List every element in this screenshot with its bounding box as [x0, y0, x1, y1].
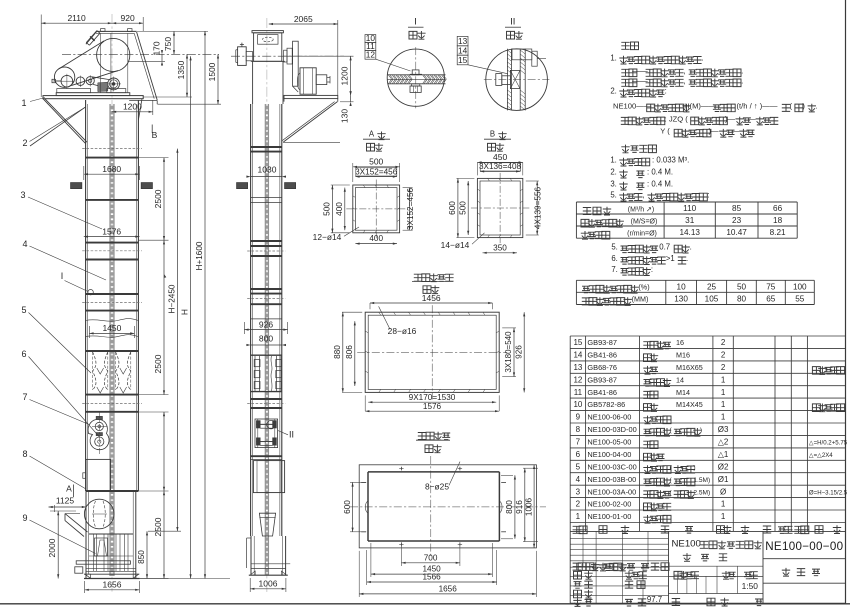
svg-text:1566: 1566 [422, 573, 441, 582]
svg-text:: 0.4 M.: : 0.4 M. [647, 180, 673, 189]
svg-text:>1: >1 [666, 254, 675, 263]
svg-text:55: 55 [795, 295, 805, 304]
svg-text:916: 916 [515, 500, 524, 514]
svg-text:I: I [414, 17, 417, 28]
svg-text:0.7: 0.7 [659, 243, 670, 252]
svg-text:GB93-87: GB93-87 [587, 338, 617, 347]
svg-text:926: 926 [259, 319, 273, 329]
svg-text:25: 25 [707, 283, 717, 292]
svg-text:: 0.033 M³.: : 0.033 M³. [652, 156, 689, 165]
svg-text:)—: )— [708, 127, 719, 136]
svg-text:): ) [700, 427, 702, 434]
svg-text:B: B [490, 130, 495, 139]
svg-text:13: 13 [573, 363, 582, 372]
svg-text:4: 4 [22, 239, 27, 249]
svg-text:△1: △1 [718, 450, 729, 459]
svg-text:NE100−00−00: NE100−00−00 [765, 540, 843, 553]
svg-text:1: 1 [721, 400, 726, 409]
svg-text:H(M)——: H(M)—— [684, 101, 716, 110]
svg-text:800: 800 [505, 500, 514, 514]
svg-text:350: 350 [493, 243, 507, 252]
svg-text:8−ø25: 8−ø25 [425, 482, 449, 492]
svg-text:2.5M): 2.5M) [693, 489, 710, 496]
svg-text:Ø=H−3.15/2.5: Ø=H−3.15/2.5 [809, 489, 848, 496]
svg-text:5: 5 [576, 462, 581, 471]
svg-text:16: 16 [676, 338, 684, 347]
svg-text:1576: 1576 [102, 226, 121, 236]
svg-text:14: 14 [573, 351, 582, 360]
svg-text:)—: )— [725, 114, 736, 123]
svg-text:—: — [732, 127, 740, 136]
svg-text:(M/S=Ø): (M/S=Ø) [631, 218, 658, 225]
svg-text:3: 3 [20, 190, 25, 200]
svg-text::: : [665, 87, 667, 96]
svg-text:M14X45: M14X45 [676, 400, 703, 409]
svg-text:H−2450: H−2450 [167, 284, 176, 313]
svg-text:△=△2X4: △=△2X4 [809, 452, 833, 459]
svg-text:28−ø16: 28−ø16 [388, 326, 417, 336]
svg-text:1456: 1456 [422, 293, 441, 303]
svg-text:1: 1 [721, 512, 726, 521]
svg-text:50: 50 [737, 283, 747, 292]
svg-text:I: I [61, 271, 64, 281]
svg-text:1006: 1006 [524, 497, 533, 516]
svg-text:31: 31 [685, 216, 695, 225]
svg-text:3.: 3. [610, 180, 617, 189]
svg-text:,: , [683, 76, 685, 85]
svg-text:II: II [289, 430, 294, 440]
svg-text:): ) [693, 464, 695, 471]
svg-text:H: H [181, 309, 190, 315]
svg-text:2500: 2500 [153, 517, 163, 536]
svg-text:97.7: 97.7 [647, 595, 662, 604]
svg-text:80: 80 [737, 295, 747, 304]
svg-text:15: 15 [573, 338, 582, 347]
svg-text:3X136=408: 3X136=408 [479, 162, 522, 171]
svg-text:7: 7 [22, 392, 27, 402]
svg-text:600: 600 [343, 500, 352, 514]
svg-text:3X152=456: 3X152=456 [406, 187, 415, 230]
svg-text:NE100-03B-00: NE100-03B-00 [587, 475, 636, 484]
svg-text:(t/h / ↑ )——: (t/h / ↑ )—— [737, 101, 778, 110]
svg-text:1350: 1350 [176, 60, 186, 79]
svg-text:100: 100 [793, 283, 807, 292]
svg-text:NE100——: NE100—— [613, 101, 652, 110]
svg-text:1006: 1006 [259, 579, 278, 589]
svg-text:1.: 1. [610, 156, 617, 165]
svg-text:9X170=1530: 9X170=1530 [409, 393, 456, 402]
svg-text:130: 130 [340, 109, 350, 123]
svg-text:8: 8 [22, 449, 27, 459]
svg-text:1656: 1656 [439, 584, 458, 593]
svg-text:2065: 2065 [294, 14, 313, 24]
svg-text:A: A [369, 130, 375, 139]
svg-text:GB5782-86: GB5782-86 [587, 400, 625, 409]
svg-text:65: 65 [766, 295, 776, 304]
svg-text:5: 5 [21, 305, 26, 315]
svg-text:NE100-03C-00: NE100-03C-00 [587, 462, 636, 471]
svg-text:18: 18 [773, 216, 783, 225]
svg-text:3X180=540: 3X180=540 [504, 331, 513, 373]
svg-text::: : [651, 265, 653, 274]
svg-text:400: 400 [369, 234, 383, 243]
svg-text:4X139=556: 4X139=556 [533, 186, 542, 229]
svg-text:(%): (%) [638, 282, 649, 291]
svg-text:—: — [748, 114, 756, 123]
svg-text:GB93-87: GB93-87 [587, 375, 617, 384]
svg-text:14−ø14: 14−ø14 [441, 240, 470, 250]
svg-text:1:50: 1:50 [742, 581, 759, 591]
svg-text:1030: 1030 [258, 165, 277, 175]
svg-text:85: 85 [732, 204, 742, 213]
svg-text:600: 600 [448, 201, 457, 215]
svg-text::: : [707, 191, 709, 200]
svg-text:1.5M): 1.5M) [693, 477, 710, 484]
svg-text:1: 1 [576, 512, 581, 521]
svg-text:400: 400 [335, 202, 344, 216]
svg-text:8: 8 [576, 425, 581, 434]
svg-text:800: 800 [259, 334, 273, 344]
svg-text:NE100-03A-00: NE100-03A-00 [587, 487, 636, 496]
svg-text:M16: M16 [676, 351, 690, 360]
svg-text:2500: 2500 [153, 354, 163, 373]
svg-text:(MM): (MM) [632, 295, 649, 304]
svg-text::: : [655, 143, 658, 153]
svg-text:1200: 1200 [123, 102, 142, 112]
svg-text:7.: 7. [611, 265, 618, 274]
svg-text:15: 15 [458, 55, 468, 65]
svg-text:12: 12 [366, 49, 376, 59]
svg-text:1: 1 [21, 98, 26, 108]
svg-text:10: 10 [573, 400, 582, 409]
svg-text:1: 1 [721, 388, 726, 397]
svg-text:105: 105 [705, 295, 719, 304]
svg-text:GB41-86: GB41-86 [587, 351, 617, 360]
svg-text:500: 500 [323, 202, 332, 216]
svg-text:NE100: NE100 [672, 539, 701, 550]
svg-text:M16X65: M16X65 [676, 363, 703, 372]
svg-text:1: 1 [721, 500, 726, 509]
svg-text:926: 926 [514, 345, 523, 359]
svg-text:500: 500 [458, 201, 467, 215]
svg-text:NE100-01-00: NE100-01-00 [587, 512, 631, 521]
svg-text:——: —— [632, 76, 648, 85]
svg-text:Y (: Y ( [660, 127, 670, 136]
svg-text:850: 850 [137, 550, 146, 564]
svg-text:2: 2 [576, 500, 581, 509]
svg-text:110: 110 [683, 204, 696, 213]
svg-text:1656: 1656 [103, 580, 122, 590]
svg-text:1: 1 [721, 413, 726, 422]
svg-text:Ø: Ø [720, 487, 726, 496]
svg-text:NE100-03D-00: NE100-03D-00 [587, 425, 636, 434]
svg-text:9: 9 [22, 513, 27, 523]
svg-text:1200: 1200 [340, 66, 350, 85]
svg-text:750: 750 [163, 37, 173, 51]
svg-text:12−ø14: 12−ø14 [313, 232, 342, 242]
svg-text:.: . [741, 66, 743, 75]
svg-text:2.: 2. [610, 168, 617, 177]
svg-text:2500: 2500 [153, 189, 163, 208]
svg-text:5.: 5. [611, 243, 618, 252]
svg-text:.: . [702, 54, 704, 63]
svg-text:6.: 6. [611, 254, 618, 263]
svg-text:920: 920 [121, 13, 135, 23]
svg-text:1680: 1680 [102, 164, 121, 174]
svg-text:3X152=456: 3X152=456 [355, 167, 398, 176]
svg-text:2: 2 [721, 351, 726, 360]
svg-text:1450: 1450 [102, 323, 121, 333]
svg-text:5.: 5. [610, 191, 617, 200]
svg-text:,: , [683, 66, 685, 75]
svg-text:12: 12 [573, 375, 582, 384]
svg-text:(M³/h ↗): (M³/h ↗) [628, 206, 654, 213]
svg-text:14.13: 14.13 [679, 228, 700, 237]
svg-text:GB41-86: GB41-86 [587, 388, 617, 397]
svg-text:.: . [741, 76, 743, 85]
svg-text:75: 75 [766, 283, 776, 292]
svg-text:Ø1: Ø1 [718, 475, 729, 484]
svg-text:3: 3 [576, 487, 581, 496]
svg-text:II: II [510, 17, 515, 28]
svg-text:2: 2 [22, 138, 27, 148]
svg-text:66: 66 [773, 204, 783, 213]
svg-text:.: . [690, 243, 692, 252]
svg-text:500: 500 [369, 157, 383, 167]
svg-text:10.47: 10.47 [726, 228, 747, 237]
svg-text:1.: 1. [610, 54, 617, 63]
svg-text:806: 806 [345, 345, 354, 359]
svg-text:11: 11 [574, 388, 583, 397]
svg-text:700: 700 [424, 553, 438, 562]
svg-text:1500: 1500 [207, 62, 217, 81]
svg-text:2110: 2110 [67, 13, 86, 23]
svg-text:2.: 2. [610, 87, 617, 96]
svg-text:Ø2: Ø2 [718, 462, 729, 471]
svg-text:GB68-76: GB68-76 [587, 363, 617, 372]
svg-text:1576: 1576 [423, 402, 442, 411]
svg-text:130: 130 [674, 295, 688, 304]
svg-text:A: A [66, 484, 72, 494]
svg-text:1125: 1125 [56, 496, 75, 506]
svg-text:6: 6 [576, 450, 581, 459]
svg-text:NE100-02-00: NE100-02-00 [587, 500, 631, 509]
svg-text:.: . [816, 101, 818, 110]
svg-text:M14: M14 [676, 388, 690, 397]
svg-text:,: , [642, 191, 644, 200]
svg-text:2000: 2000 [47, 538, 57, 557]
svg-text:: JZQ (: : JZQ ( [665, 114, 689, 123]
svg-text:14: 14 [676, 375, 684, 384]
svg-text:170: 170 [151, 41, 161, 55]
svg-text:4: 4 [576, 475, 581, 484]
svg-text:880: 880 [333, 345, 342, 359]
svg-text:NE100-05-00: NE100-05-00 [587, 438, 631, 447]
svg-text:NE100-06-00: NE100-06-00 [587, 413, 631, 422]
svg-text::: : [637, 40, 640, 50]
svg-text:△=H/0.2+5.75: △=H/0.2+5.75 [809, 440, 848, 447]
svg-text:——: —— [632, 66, 648, 75]
svg-text:450: 450 [493, 152, 507, 162]
svg-text:H+1600: H+1600 [195, 241, 204, 270]
svg-text:(r/min=Ø): (r/min=Ø) [627, 230, 657, 237]
svg-text:NE100-04-00: NE100-04-00 [587, 450, 631, 459]
svg-text:6: 6 [21, 349, 26, 359]
svg-text:10: 10 [677, 283, 687, 292]
svg-text:23: 23 [732, 216, 742, 225]
svg-text:△2: △2 [718, 438, 729, 447]
svg-text:.: . [686, 254, 688, 263]
svg-text:7: 7 [576, 438, 581, 447]
svg-text:8.21: 8.21 [770, 228, 786, 237]
svg-text:2: 2 [721, 363, 726, 372]
svg-text:: 0.4 M.: : 0.4 M. [647, 168, 673, 177]
svg-text:1: 1 [721, 375, 726, 384]
svg-text:2: 2 [721, 338, 726, 347]
svg-text:9: 9 [576, 413, 581, 422]
svg-text:Ø3: Ø3 [718, 425, 729, 434]
